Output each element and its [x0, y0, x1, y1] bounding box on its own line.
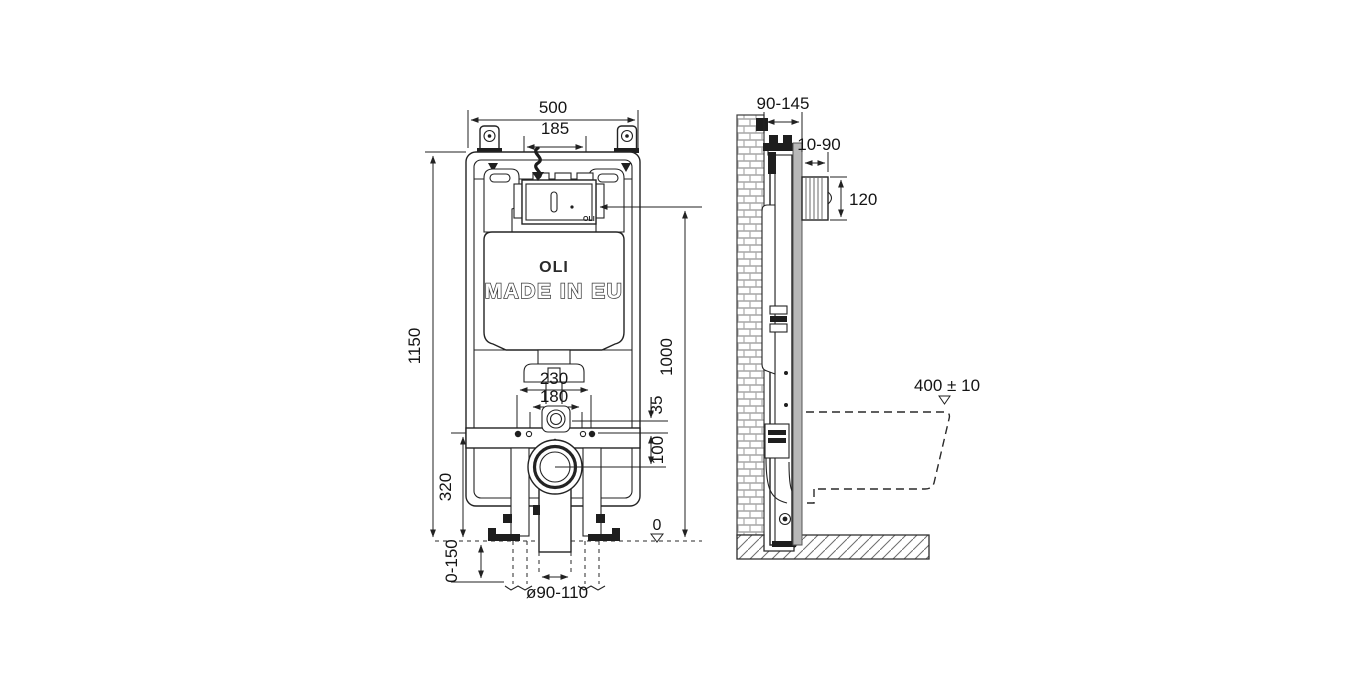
inspection-box: OLI [514, 173, 604, 224]
cistern-frame-drawing: 1150 320 0-150 500 185 [0, 0, 1366, 678]
dim-label-fixing-bolt-spacing: 230 [540, 369, 568, 388]
water-inlet-connector [542, 406, 570, 432]
dim-label-flush-plate-center-height: 1000 [657, 338, 676, 376]
cistern-profile [762, 205, 775, 374]
background [0, 0, 1366, 678]
technical-drawing-page: 1150 320 0-150 500 185 [0, 0, 1366, 678]
dim-label-frame-depth: 90-145 [757, 94, 810, 113]
dim-label-outlet-diameter: ø90-110 [526, 583, 588, 602]
dim-label-leg-adjustment: 0-150 [442, 539, 461, 582]
dim-label-overall-width: 500 [539, 98, 567, 117]
flush-button-slot [551, 192, 557, 212]
dim-label-inspection-box-height: 120 [849, 190, 877, 209]
tank-logo: OLI [539, 259, 569, 276]
inspection-box-side [802, 177, 832, 220]
masonry-wall [737, 115, 764, 535]
dim-label-overall-height: 1150 [405, 328, 424, 365]
dim-label-wall-finish-depth: 10-90 [797, 135, 840, 154]
cistern-tank: OLI MADE IN EU [484, 232, 624, 350]
finished-wall-plate [793, 143, 802, 545]
dim-label-inlet-offset: 35 [647, 396, 666, 415]
mounting-bracket-left [477, 126, 502, 153]
dim-label-flush-plate-spacing: 185 [541, 119, 569, 138]
dim-label-floor-level: 0 [653, 517, 662, 534]
dim-label-outlet-offset: 100 [648, 436, 667, 464]
dim-label-water-supply-spacing: 180 [540, 387, 568, 406]
mounting-bracket-right [614, 126, 639, 153]
dim-label-bowl-height: 400 ± 10 [914, 376, 980, 395]
made-in-eu-text: MADE IN EU [485, 280, 624, 303]
plate-logo: OLI [583, 216, 595, 223]
dim-label-fixing-bar-height: 320 [436, 473, 455, 501]
